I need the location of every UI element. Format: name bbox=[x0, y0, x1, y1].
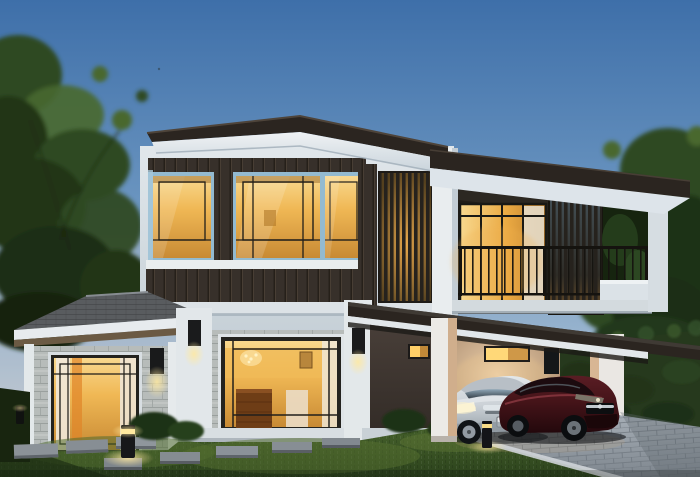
architectural-rendering bbox=[0, 0, 700, 477]
porch-window-lit bbox=[410, 346, 420, 357]
spandrel-panel bbox=[146, 269, 368, 302]
foreground-shadow bbox=[0, 470, 700, 477]
stepping-stone bbox=[14, 443, 58, 459]
chandelier bbox=[240, 350, 262, 366]
sconce-glow bbox=[348, 349, 368, 375]
stepping-stone bbox=[272, 442, 312, 453]
window-sill bbox=[146, 260, 368, 269]
distant-bird bbox=[158, 68, 160, 70]
louver-screen-lit bbox=[379, 172, 432, 302]
dark-post bbox=[358, 164, 377, 316]
living-room-window bbox=[218, 334, 344, 434]
stepping-stone bbox=[66, 439, 108, 453]
window-header-panel bbox=[148, 158, 366, 174]
carport-column-left bbox=[431, 318, 457, 442]
upper-window-center bbox=[236, 176, 320, 258]
wall-art bbox=[300, 352, 312, 368]
amber-drape bbox=[72, 358, 82, 450]
wood-cabinet bbox=[236, 392, 272, 428]
coupe-emblem bbox=[598, 404, 602, 408]
stepping-stone bbox=[322, 438, 360, 448]
sconce-glow bbox=[145, 366, 169, 398]
console bbox=[286, 390, 308, 427]
stepping-stone bbox=[216, 446, 258, 458]
upper-window-right bbox=[325, 176, 362, 258]
stepping-stone bbox=[160, 452, 200, 464]
right-end-wall bbox=[648, 196, 668, 312]
sconce-glow bbox=[184, 341, 204, 367]
upper-window-left bbox=[153, 176, 211, 258]
